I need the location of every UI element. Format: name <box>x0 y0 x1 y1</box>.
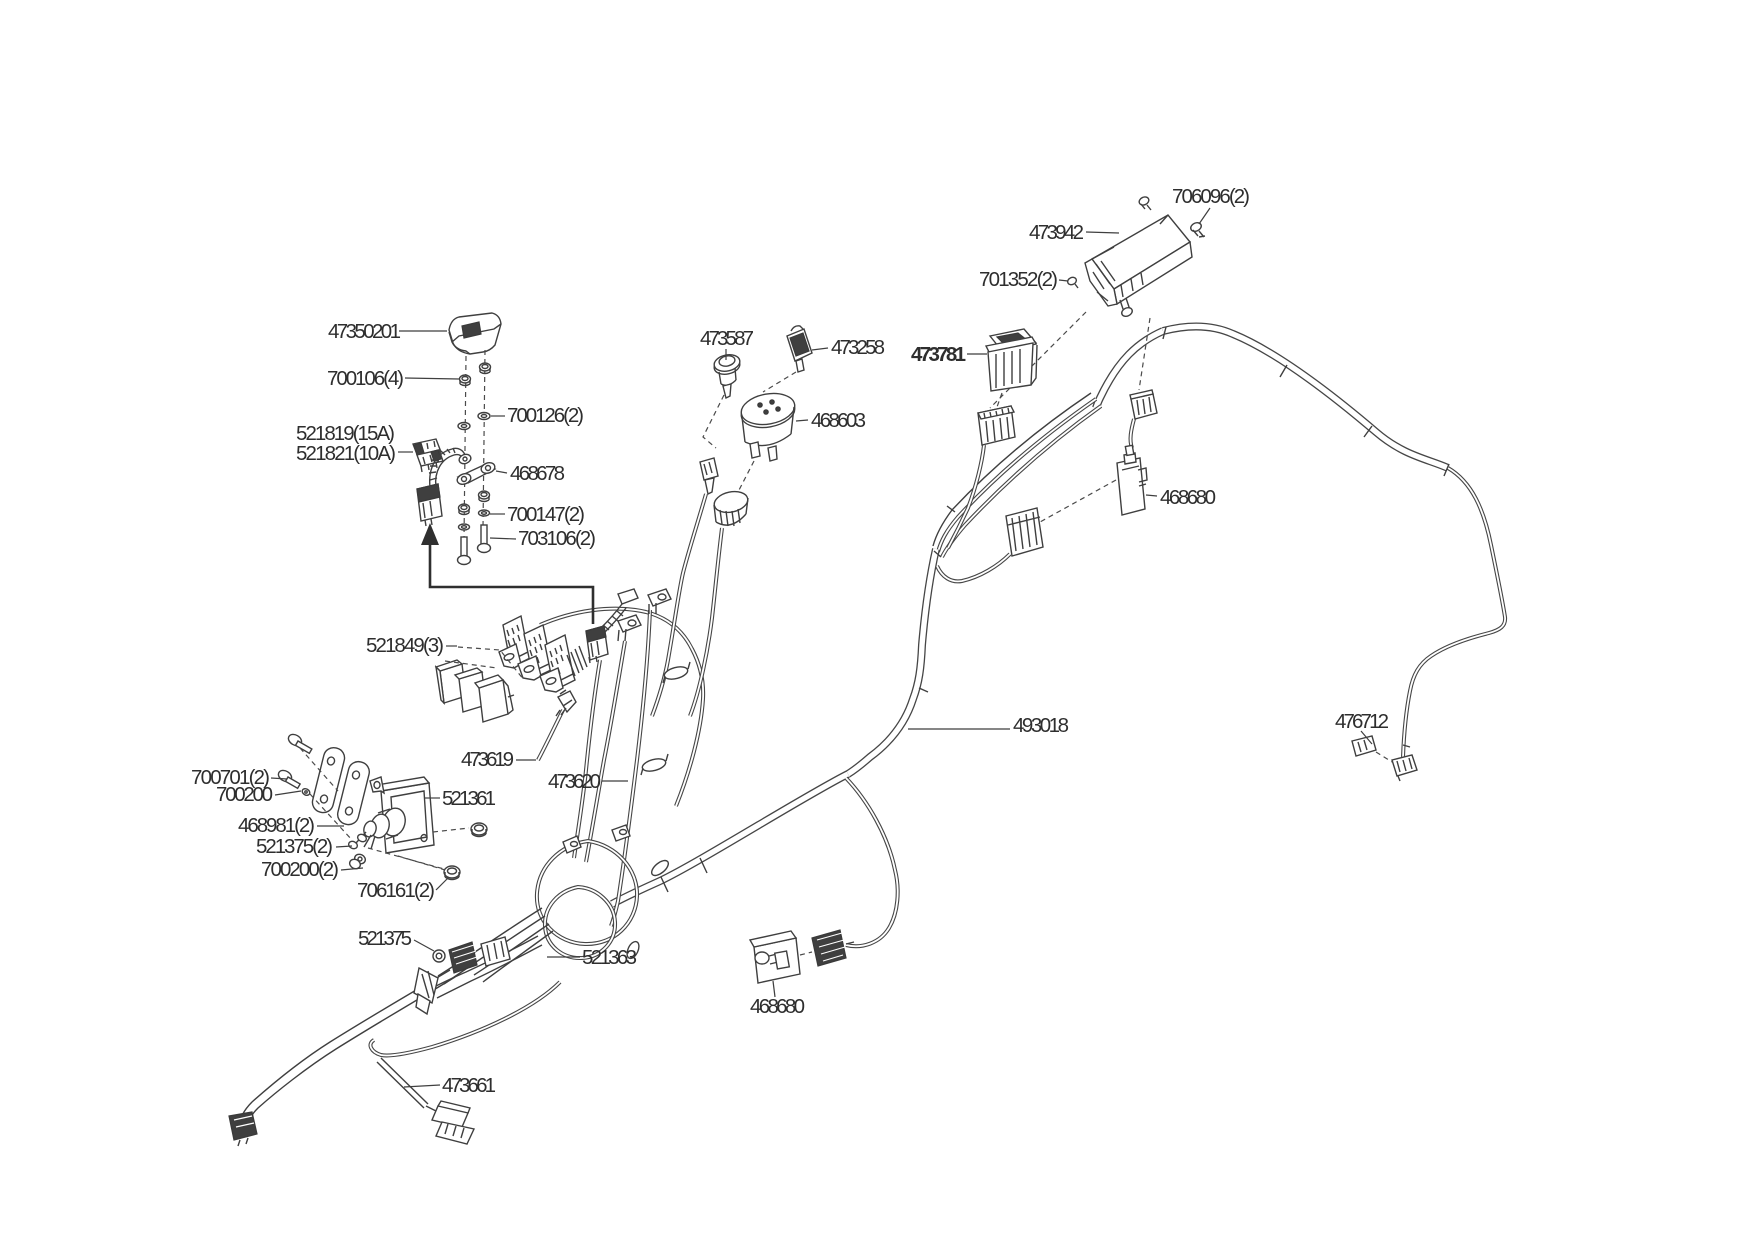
svg-text:493018: 493018 <box>1013 714 1069 737</box>
svg-text:700126(2): 700126(2) <box>507 404 584 427</box>
svg-text:706096(2): 706096(2) <box>1172 185 1250 208</box>
svg-text:473620: 473620 <box>548 770 601 793</box>
svg-text:47350201: 47350201 <box>328 320 401 343</box>
svg-text:700200(2): 700200(2) <box>261 858 339 881</box>
svg-text:473258: 473258 <box>831 336 885 359</box>
svg-text:476712: 476712 <box>1335 710 1389 733</box>
svg-text:473942: 473942 <box>1029 221 1084 244</box>
svg-text:703106(2): 703106(2) <box>518 527 596 550</box>
svg-text:521375(2): 521375(2) <box>256 835 333 858</box>
svg-text:521361: 521361 <box>442 787 496 810</box>
svg-text:473619: 473619 <box>461 748 514 771</box>
svg-text:468603: 468603 <box>811 409 866 432</box>
svg-text:473781: 473781 <box>911 343 966 366</box>
svg-text:473661: 473661 <box>442 1074 496 1097</box>
svg-text:468678: 468678 <box>510 462 565 485</box>
svg-text:700147(2): 700147(2) <box>507 503 585 526</box>
svg-text:521363: 521363 <box>582 946 637 969</box>
svg-text:521375: 521375 <box>358 927 412 950</box>
svg-text:701352(2): 701352(2) <box>979 268 1058 291</box>
svg-text:468981(2): 468981(2) <box>238 814 315 837</box>
svg-text:468680: 468680 <box>750 995 805 1018</box>
svg-text:700106(4): 700106(4) <box>327 367 404 390</box>
svg-text:706161(2): 706161(2) <box>357 879 435 902</box>
svg-text:521821(10A): 521821(10A) <box>296 442 396 465</box>
svg-text:468680: 468680 <box>1160 486 1216 509</box>
svg-text:521849(3): 521849(3) <box>366 634 444 657</box>
svg-text:700200: 700200 <box>216 783 273 806</box>
svg-text:473587: 473587 <box>700 327 754 350</box>
